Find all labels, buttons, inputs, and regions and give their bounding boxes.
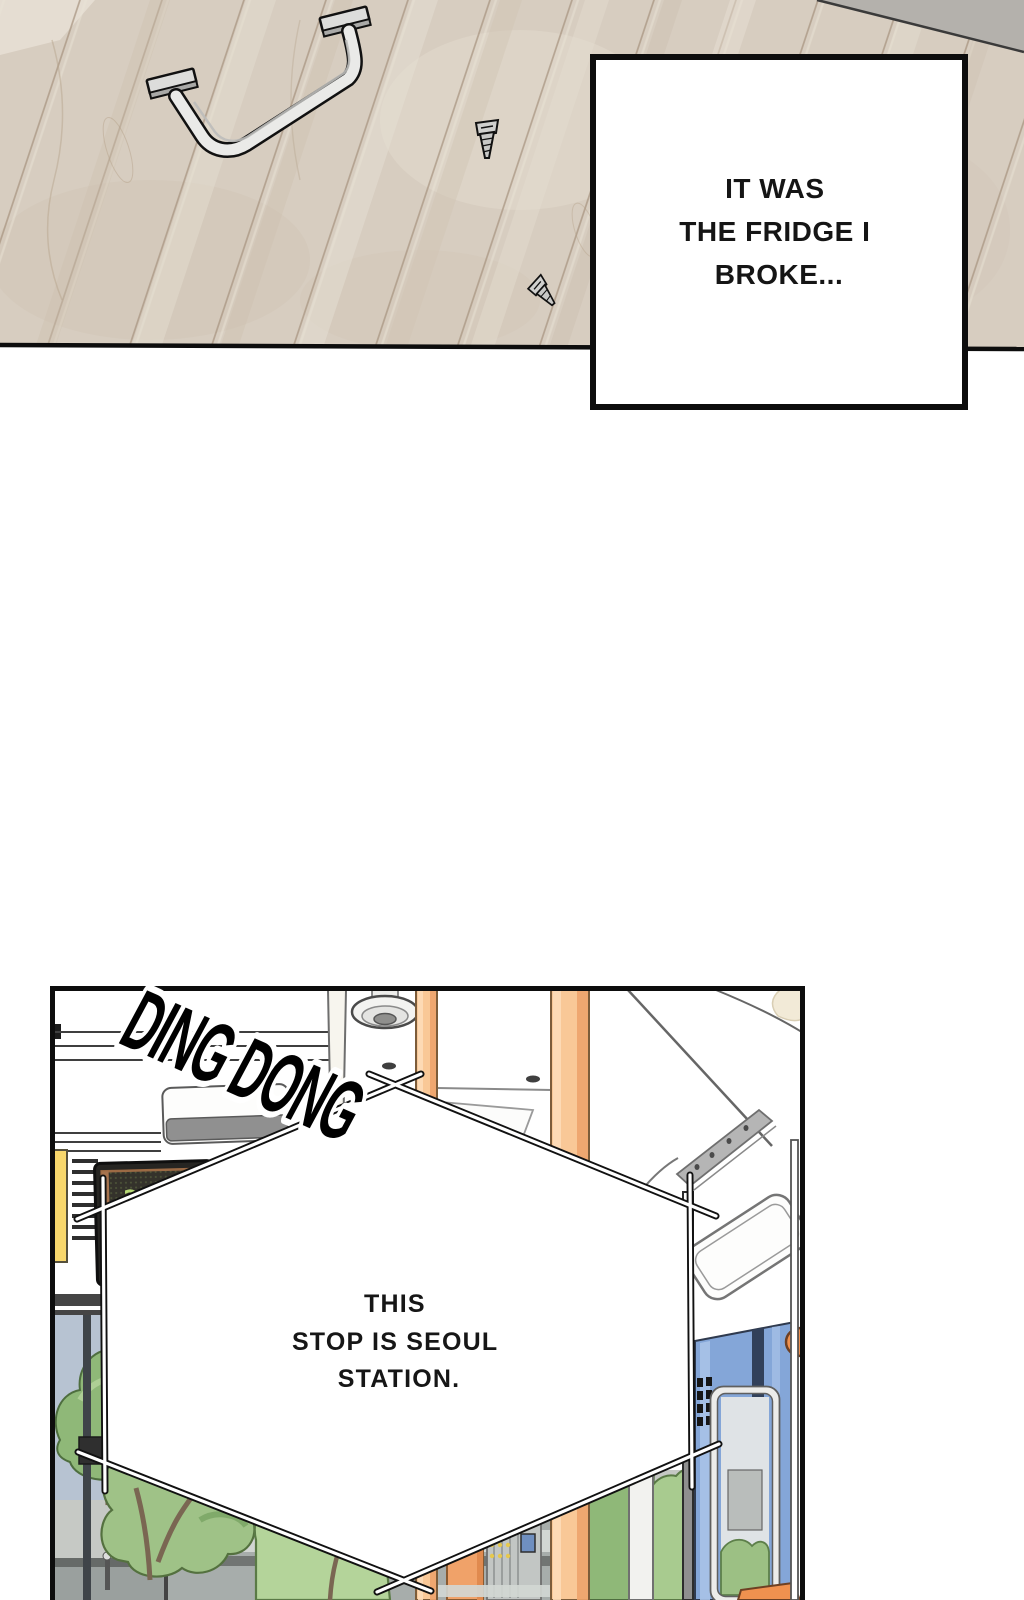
caption-box: IT WAS THE FRIDGE I BROKE... (593, 57, 965, 407)
comic-artwork: IT WAS THE FRIDGE I BROKE... (0, 0, 1024, 1600)
dome-camera (352, 996, 418, 1028)
ceiling-screw (382, 1063, 396, 1070)
ceiling-screw (526, 1076, 540, 1083)
caption-line: IT WAS (725, 173, 824, 204)
bus-door (695, 1322, 795, 1600)
panel-fridge-door: IT WAS THE FRIDGE I BROKE... (0, 0, 1024, 407)
bubble-line: STOP IS SEOUL (292, 1328, 498, 1356)
bubble-line: THIS (364, 1290, 426, 1318)
caption-line: BROKE... (715, 259, 843, 290)
panel-bus-interior: 2+ P (52, 972, 816, 1600)
bus-stop-sign (521, 1534, 535, 1552)
webtoon-page: IT WAS THE FRIDGE I BROKE... (0, 0, 1024, 1600)
bubble-line: STATION. (338, 1365, 461, 1393)
caption-line: THE FRIDGE I (679, 216, 870, 247)
